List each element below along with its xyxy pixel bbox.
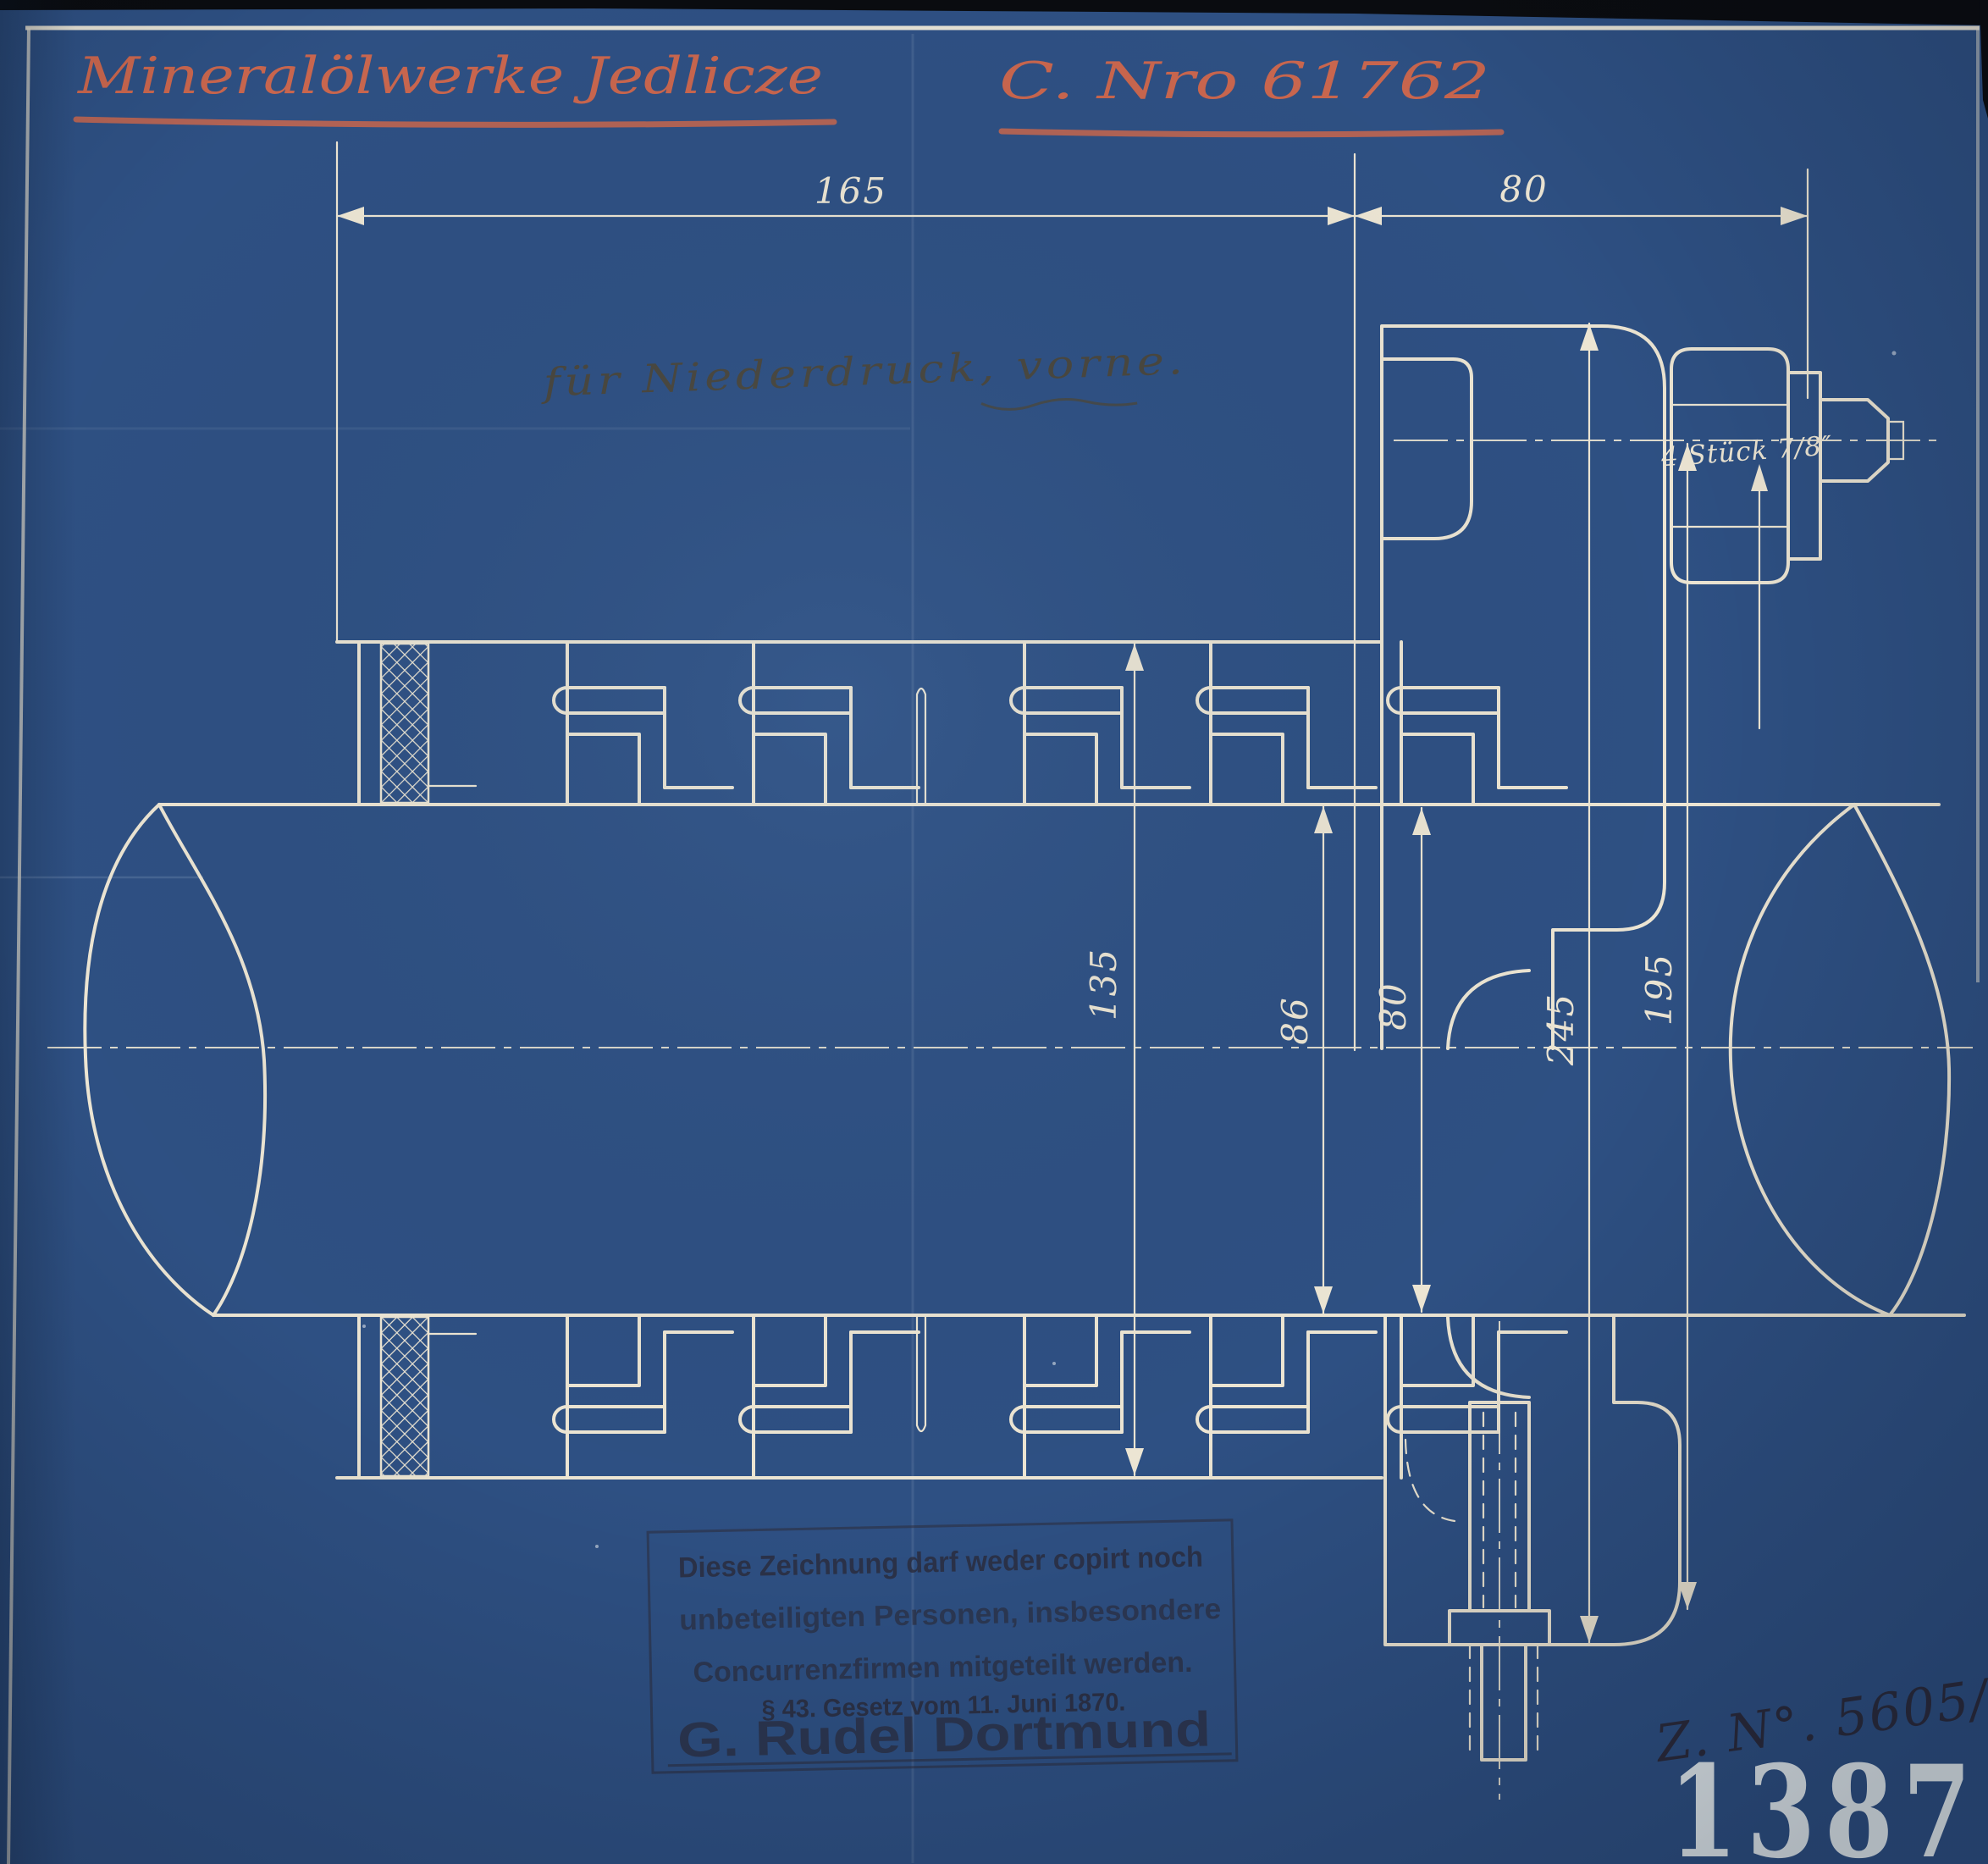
archive-number: 1387 xyxy=(1669,1738,1980,1864)
stamp-maker-name: G. Rudel Dortmund xyxy=(677,1701,1212,1767)
dim-165: 165 xyxy=(815,170,887,212)
dim-195: 195 xyxy=(1638,953,1680,1026)
blueprint-canvas: 165 80 135 86 80 245 195 4 Stück 7/8″ Mi… xyxy=(0,0,1988,1864)
number-underline xyxy=(1002,131,1501,135)
blueprint-scan: 165 80 135 86 80 245 195 4 Stück 7/8″ Mi… xyxy=(0,0,1988,1864)
dim-80-rod: 80 xyxy=(1372,982,1414,1030)
dim-135: 135 xyxy=(1083,948,1124,1020)
dim-80-top: 80 xyxy=(1499,169,1548,210)
company-title: Mineralölwerke Jedlicze xyxy=(77,47,823,106)
drawing-number-red: C. Nro 61762 xyxy=(999,52,1490,111)
dim-86: 86 xyxy=(1274,996,1316,1044)
dim-245: 245 xyxy=(1540,993,1582,1066)
